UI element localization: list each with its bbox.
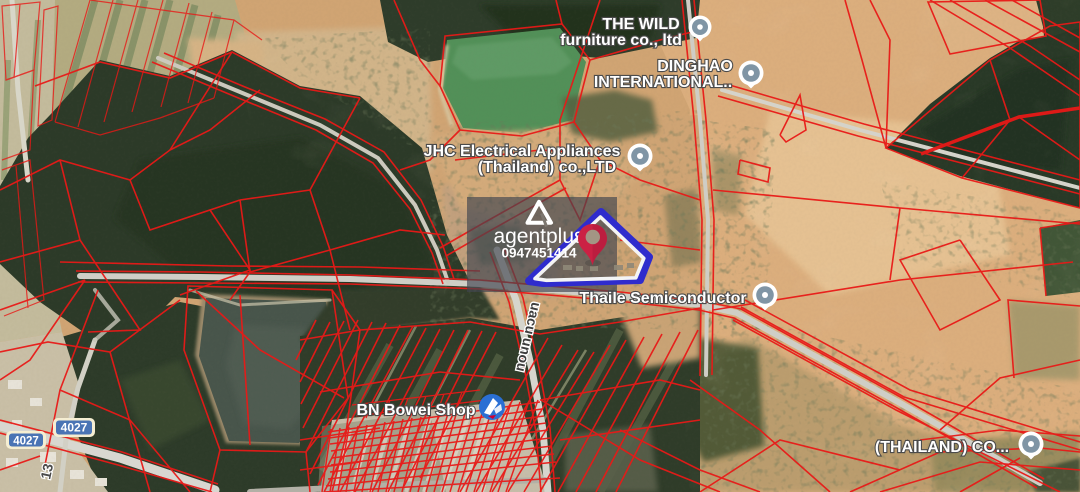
- svg-text:(Thailand) co.,LTD: (Thailand) co.,LTD: [478, 159, 616, 176]
- svg-text:4027: 4027: [61, 421, 88, 435]
- svg-text:BN Bowei Shop: BN Bowei Shop: [356, 402, 475, 419]
- svg-text:Thaile Semiconductor: Thaile Semiconductor: [579, 290, 746, 307]
- svg-text:furniture co., ltd: furniture co., ltd: [560, 32, 682, 49]
- svg-text:4027: 4027: [13, 436, 39, 448]
- svg-text:JHC Electrical Appliances: JHC Electrical Appliances: [424, 143, 621, 160]
- svg-text:DINGHAO: DINGHAO: [657, 58, 733, 75]
- svg-text:0947451414: 0947451414: [501, 246, 577, 261]
- svg-text:THE WILD: THE WILD: [602, 16, 679, 33]
- svg-text:(THAILAND) CO...: (THAILAND) CO...: [875, 439, 1009, 456]
- svg-text:INTERNATIONAL..: INTERNATIONAL..: [594, 74, 732, 91]
